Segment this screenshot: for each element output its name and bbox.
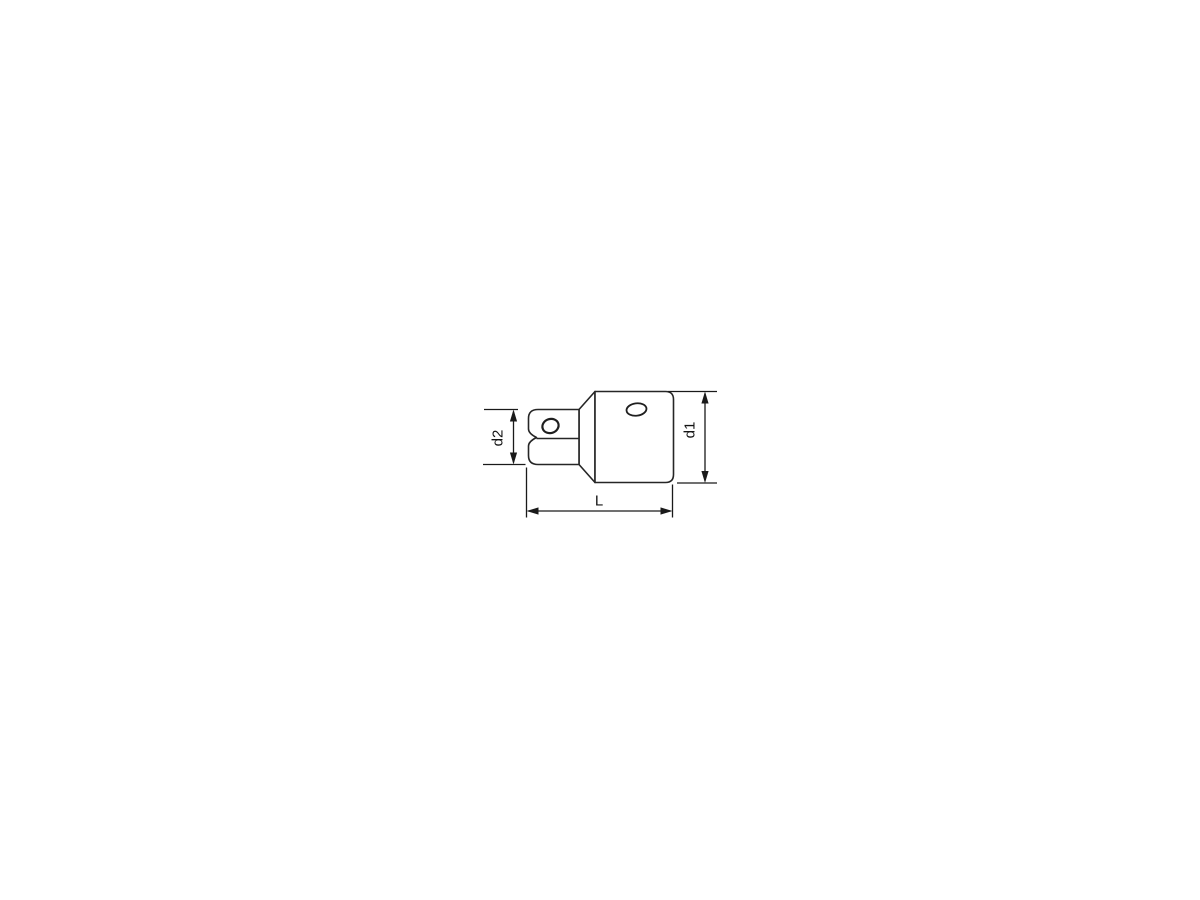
dim-label-L: L — [595, 494, 603, 509]
dim-label-d2: d2 — [491, 430, 506, 447]
L-arrowhead-right — [661, 507, 673, 514]
d2-arrowhead-up — [510, 410, 517, 422]
d1-arrowhead-up — [701, 392, 708, 404]
page: d2 d1 L — [0, 0, 1200, 900]
square-drive — [529, 410, 580, 465]
adapter-body — [595, 392, 674, 483]
dim-label-d1: d1 — [683, 422, 698, 439]
d2-arrowhead-down — [510, 453, 517, 465]
L-arrowhead-left — [527, 507, 539, 514]
d1-arrowhead-down — [701, 471, 708, 483]
adapter-neck — [579, 392, 595, 483]
socket-adapter-drawing — [0, 0, 1200, 900]
